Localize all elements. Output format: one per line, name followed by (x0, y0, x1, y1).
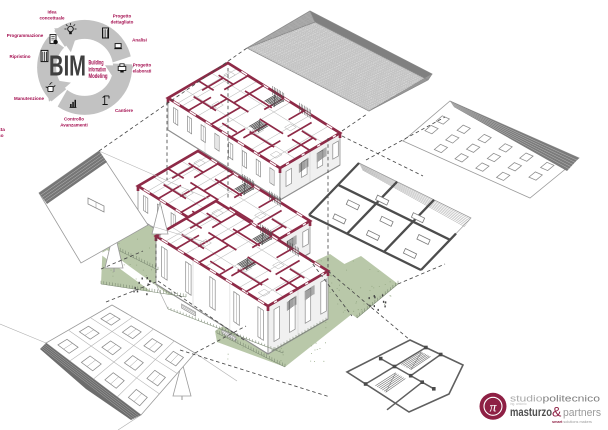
svg-text:elaborati: elaborati (133, 69, 152, 74)
svg-text:Analisi: Analisi (132, 38, 147, 43)
svg-text:co: co (0, 134, 4, 139)
svg-text:dettagliato: dettagliato (111, 20, 134, 25)
svg-text:Building: Building (89, 61, 104, 67)
svg-text:Modeling: Modeling (89, 74, 108, 80)
svg-text:Cantiere: Cantiere (115, 108, 134, 113)
svg-text:Progetto: Progetto (113, 14, 132, 19)
svg-text:concettuale: concettuale (39, 16, 65, 21)
svg-text:&: & (552, 404, 562, 420)
svg-text:Avanzamenti: Avanzamenti (60, 123, 88, 128)
svg-text:Controllo: Controllo (64, 117, 84, 122)
svg-text:BIM: BIM (49, 51, 86, 83)
svg-text:Ripristino: Ripristino (10, 54, 31, 59)
svg-text:smart solutions makers: smart solutions makers (552, 420, 592, 424)
svg-text:Progetto: Progetto (133, 63, 152, 68)
svg-text:Idea: Idea (47, 10, 57, 15)
svg-text:π: π (489, 401, 497, 416)
svg-text:sta: sta (0, 127, 5, 133)
svg-text:Information: Information (89, 67, 107, 73)
svg-text:partners: partners (563, 407, 601, 419)
svg-text:Manutenzione: Manutenzione (14, 96, 44, 101)
svg-text:ing. antonio: ing. antonio (510, 402, 527, 406)
svg-text:masturzo: masturzo (510, 407, 552, 419)
svg-text:Programmazione: Programmazione (7, 33, 44, 38)
